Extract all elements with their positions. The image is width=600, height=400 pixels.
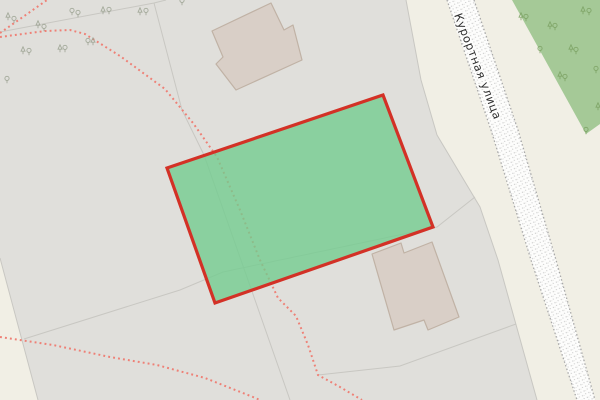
map-canvas: Курортная улица: [0, 0, 600, 400]
map-viewport[interactable]: Курортная улица: [0, 0, 600, 400]
